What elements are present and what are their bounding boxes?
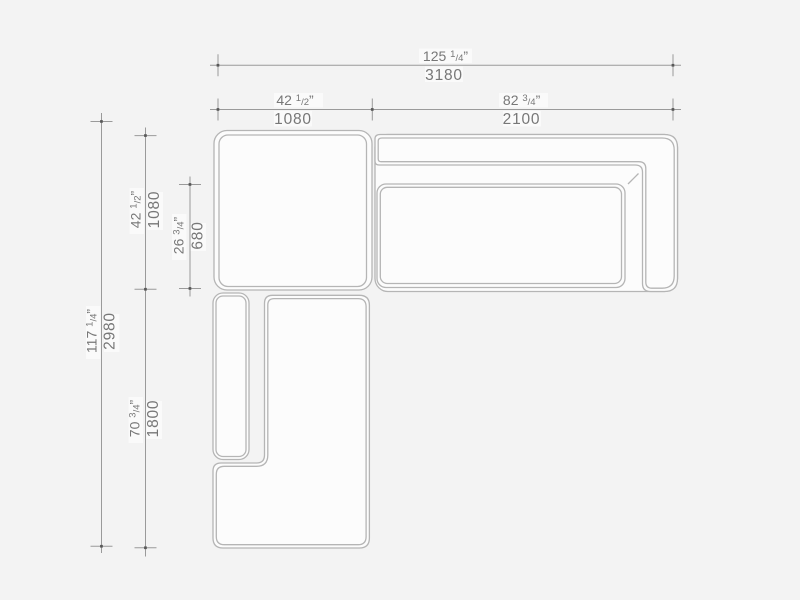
svg-text:82 3/4”: 82 3/4” [503,92,541,108]
svg-text:42 1/2”: 42 1/2” [276,92,314,108]
svg-text:70 3/4”: 70 3/4” [126,399,142,437]
svg-text:26 3/4”: 26 3/4” [170,216,186,254]
svg-text:2100: 2100 [503,111,541,128]
svg-text:680: 680 [190,221,207,249]
svg-text:42 1/2”: 42 1/2” [127,190,143,228]
svg-text:2980: 2980 [102,312,119,350]
svg-text:1080: 1080 [274,111,312,128]
svg-text:1800: 1800 [145,400,162,438]
svg-text:3180: 3180 [425,67,463,84]
svg-text:1080: 1080 [146,191,163,229]
